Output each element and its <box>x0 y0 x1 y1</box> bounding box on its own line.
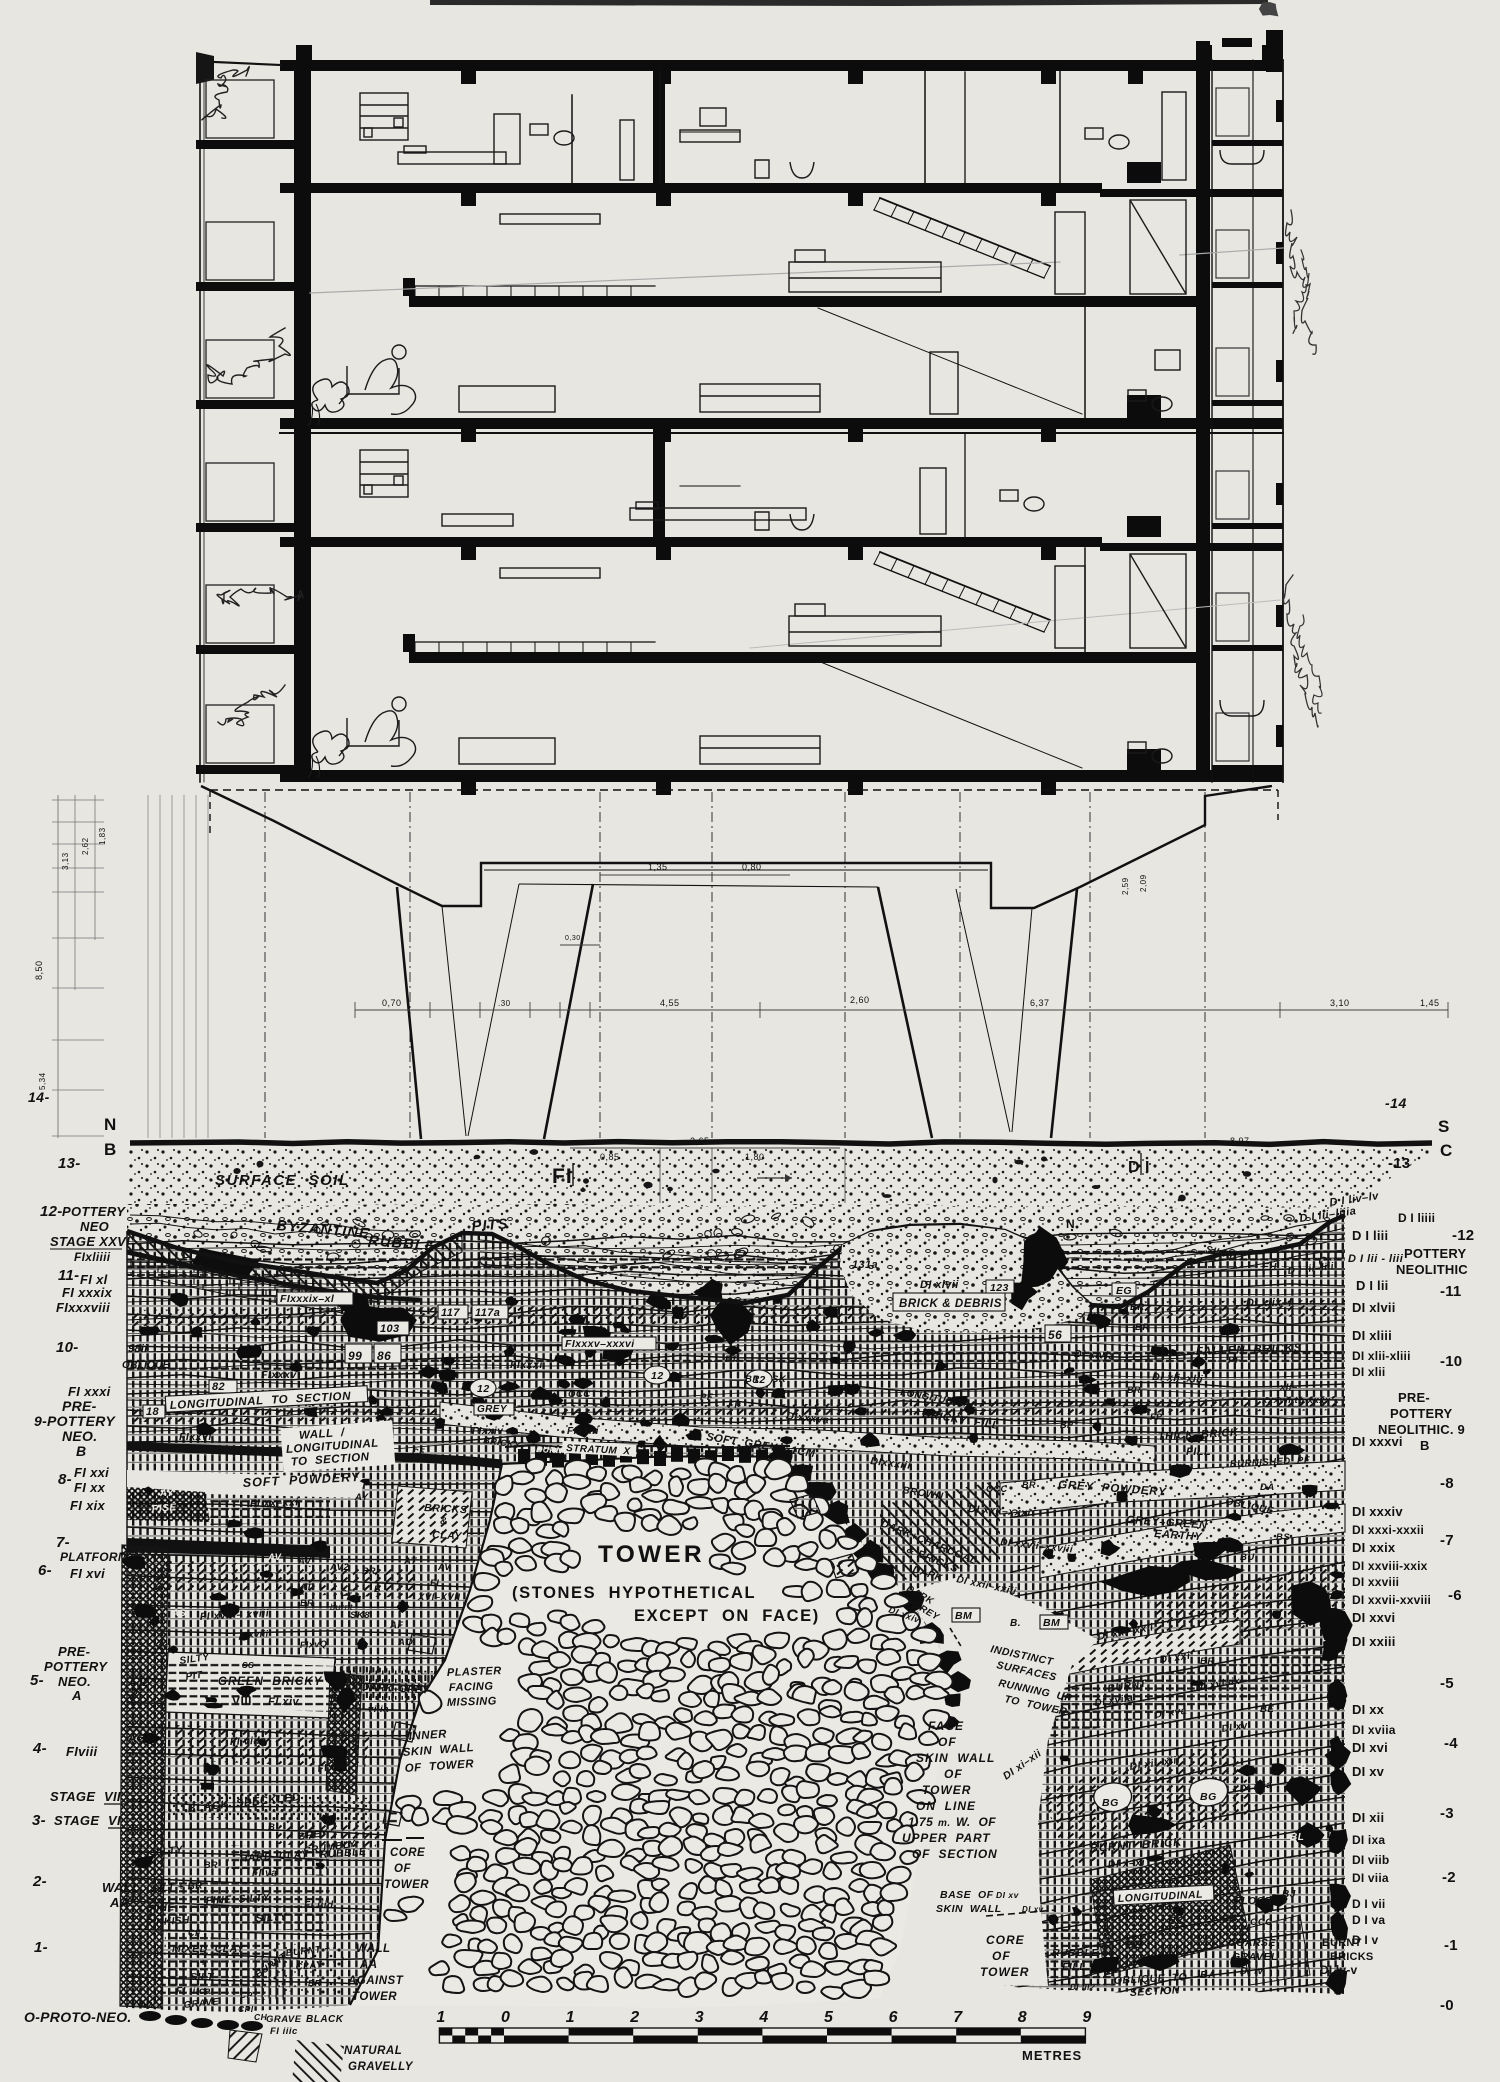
svg-text:BP: BP <box>1060 1420 1074 1430</box>
svg-text:WALL: WALL <box>356 1943 391 1955</box>
svg-text:BR: BR <box>308 1978 322 1988</box>
svg-text:B: B <box>104 1140 116 1159</box>
svg-text:AS: AS <box>171 1608 186 1619</box>
svg-text:BG: BG <box>1200 1791 1217 1803</box>
svg-text:DI xxvii-xxviii: DI xxvii-xxviii <box>1352 1593 1431 1607</box>
svg-text:TOWER: TOWER <box>384 1879 429 1891</box>
svg-text:viiia: viiia <box>368 1704 389 1715</box>
svg-text:DI xxxvi: DI xxxvi <box>1352 1434 1403 1449</box>
svg-text:FIxxxi: FIxxxi <box>510 1359 543 1371</box>
svg-text:CPI: CPI <box>238 2004 254 2014</box>
svg-text:AV: AV <box>139 2000 153 2010</box>
svg-text:RUBBLE–: RUBBLE– <box>1052 1947 1105 1959</box>
svg-text:2,59: 2,59 <box>1121 877 1130 895</box>
svg-text:AV: AV <box>437 1562 451 1572</box>
svg-text:FI iiid: FI iiid <box>304 1900 334 1911</box>
svg-text:FI xiv: FI xiv <box>268 1696 300 1708</box>
svg-text:D I vii: D I vii <box>1352 1897 1385 1911</box>
svg-text:FI iiica: FI iiica <box>176 1986 211 1997</box>
svg-text:DI xlix–l: DI xlix–l <box>1246 1297 1293 1309</box>
svg-text:11-: 11- <box>58 1267 79 1284</box>
svg-text:BJ: BJ <box>1282 1889 1296 1900</box>
svg-text:0,70: 0,70 <box>382 998 402 1008</box>
svg-text:DI xxxi-xxxii: DI xxxi-xxxii <box>1352 1523 1424 1537</box>
svg-text:1: 1 <box>436 2009 445 2026</box>
svg-text:AA: AA <box>109 1895 129 1910</box>
svg-text:117: 117 <box>441 1307 460 1319</box>
svg-text:BRICKS: BRICKS <box>424 1502 468 1516</box>
svg-text:7-: 7- <box>56 1534 70 1551</box>
svg-text:xxxvii to xxxx: xxxvii to xxxx <box>1261 1395 1331 1406</box>
svg-text:CLAY: CLAY <box>432 1529 463 1543</box>
svg-text:BURNT: BURNT <box>1322 1937 1362 1949</box>
svg-text:m.: m. <box>938 1818 951 1829</box>
svg-text:-7: -7 <box>1440 1532 1454 1549</box>
svg-text:PF: PF <box>700 1392 713 1403</box>
svg-text:-11: -11 <box>1440 1283 1461 1300</box>
svg-text:BE: BE <box>1260 1704 1274 1715</box>
svg-text:BC: BC <box>1168 1915 1185 1927</box>
svg-text:TOWER: TOWER <box>980 1965 1029 1979</box>
svg-text:DI xxviii: DI xxviii <box>1352 1575 1399 1589</box>
svg-text:TOWER: TOWER <box>352 1991 397 2003</box>
svg-text:VII: VII <box>104 1789 121 1804</box>
svg-text:2,62: 2,62 <box>81 837 90 855</box>
svg-text:BR: BR <box>1127 1385 1141 1395</box>
svg-text:AGAINST: AGAINST <box>347 1975 404 1987</box>
svg-text:FLOOR: FLOOR <box>1235 1896 1273 1907</box>
svg-text:GRAVE: GRAVE <box>266 2014 302 2025</box>
svg-text:DI xv: DI xv <box>1352 1764 1385 1779</box>
svg-text:0,80: 0,80 <box>742 862 762 872</box>
svg-text:BU: BU <box>1240 1552 1255 1563</box>
svg-text:FINE: FINE <box>149 1902 174 1915</box>
svg-text:B.: B. <box>1010 1618 1021 1629</box>
svg-text:TOWER: TOWER <box>598 1541 705 1568</box>
svg-text:SILTY: SILTY <box>255 1911 288 1925</box>
svg-text:AT: AT <box>403 1556 418 1567</box>
svg-text:OF: OF <box>394 1863 411 1875</box>
svg-text:STAGE XXVI: STAGE XXVI <box>50 1234 130 1249</box>
svg-text:10-: 10- <box>56 1339 79 1356</box>
svg-text:-14: -14 <box>1385 1095 1407 1111</box>
svg-text:PLATFORM: PLATFORM <box>60 1550 129 1564</box>
svg-text:DI xxvi: DI xxvi <box>1352 1610 1395 1625</box>
svg-text:GRAVELLY: GRAVELLY <box>348 2061 414 2073</box>
svg-text:98ii: 98ii <box>128 1343 148 1355</box>
svg-text:FIxxxv–xxxvi: FIxxxv–xxxvi <box>565 1338 635 1350</box>
svg-text:DI xxix: DI xxix <box>1352 1540 1396 1555</box>
svg-text:DI ixa: DI ixa <box>1352 1833 1385 1847</box>
svg-text:1-: 1- <box>34 1939 48 1956</box>
svg-text:FI xxi: FI xxi <box>74 1465 109 1480</box>
svg-text:FI: FI <box>552 1165 573 1188</box>
svg-text:FI xx: FI xx <box>74 1480 106 1495</box>
svg-text:FI iiic: FI iiic <box>270 2026 298 2037</box>
svg-text:S: S <box>1438 1117 1449 1136</box>
svg-text:FACE: FACE <box>928 1719 964 1733</box>
svg-text:SURFACE SOIL: SURFACE SOIL <box>215 1172 350 1189</box>
svg-text:CF: CF <box>330 1747 344 1758</box>
svg-text:VI: VI <box>108 1813 121 1828</box>
svg-text:SS: SS <box>1222 1914 1236 1925</box>
svg-text:DI xlvii: DI xlvii <box>920 1279 959 1291</box>
svg-text:+: + <box>200 1958 206 1969</box>
svg-text:9: 9 <box>1082 2009 1091 2026</box>
svg-text:1.75: 1.75 <box>908 1815 933 1829</box>
svg-text:BB: BB <box>1126 1939 1143 1951</box>
svg-text:NEO.: NEO. <box>58 1674 91 1689</box>
svg-text:FILL: FILL <box>1186 1446 1211 1458</box>
svg-text:BR: BR <box>1200 1656 1215 1667</box>
svg-text:AY: AY <box>159 1488 175 1499</box>
svg-text:GREY: GREY <box>477 1404 508 1415</box>
svg-text:4: 4 <box>758 2009 768 2026</box>
svg-text:PLASTER: PLASTER <box>447 1665 502 1679</box>
svg-text:123: 123 <box>990 1282 1009 1294</box>
svg-text:= xviii: = xviii <box>240 1629 269 1640</box>
svg-text:56: 56 <box>1048 1328 1062 1342</box>
svg-text:DI xx: DI xx <box>1352 1702 1385 1717</box>
svg-text:-2: -2 <box>1442 1869 1456 1886</box>
svg-text:OCC: OCC <box>568 1389 591 1400</box>
svg-text:FIxliiii: FIxliiii <box>74 1250 111 1264</box>
svg-text:DA: DA <box>1260 1482 1275 1493</box>
svg-text:SS: SS <box>242 1660 254 1670</box>
svg-text:POTTERY: POTTERY <box>62 1204 126 1219</box>
svg-text:SILT: SILT <box>190 1971 215 1983</box>
svg-text:8-: 8- <box>58 1471 72 1488</box>
svg-text:BR: BR <box>1130 1302 1145 1313</box>
svg-text:0,30: 0,30 <box>565 935 581 942</box>
svg-text:-13: -13 <box>1388 1155 1410 1172</box>
svg-text:NEO.: NEO. <box>62 1428 97 1444</box>
svg-text:CF: CF <box>340 1588 353 1598</box>
svg-text:SK8: SK8 <box>350 1610 370 1621</box>
svg-text:FI xxxi: FI xxxi <box>68 1384 111 1399</box>
svg-text:FIviii: FIviii <box>66 1744 98 1759</box>
svg-text:AT: AT <box>299 1582 313 1592</box>
svg-text:MISSING: MISSING <box>447 1695 497 1709</box>
svg-text:BRICK & DEBRIS: BRICK & DEBRIS <box>899 1298 1002 1310</box>
svg-text:AY: AY <box>354 1492 370 1503</box>
svg-text:BA: BA <box>1200 1969 1216 1981</box>
svg-text:OF SECTION: OF SECTION <box>912 1847 997 1861</box>
svg-text:DI xv: DI xv <box>996 1890 1020 1900</box>
svg-text:5-: 5- <box>30 1672 44 1689</box>
svg-text:DI lii?: DI lii? <box>1070 1983 1095 1992</box>
svg-text:FIxxxix–xl: FIxxxix–xl <box>280 1293 335 1305</box>
svg-text:BASE OF: BASE OF <box>940 1889 994 1901</box>
svg-text:EXCEPT ON FACE): EXCEPT ON FACE) <box>634 1607 820 1625</box>
svg-text:FILL: FILL <box>1062 1961 1086 1973</box>
svg-text:CORE: CORE <box>986 1933 1025 1947</box>
svg-text:8,50: 8,50 <box>34 960 44 980</box>
svg-text:13-: 13- <box>58 1155 81 1172</box>
svg-text:SKIN WALL: SKIN WALL <box>936 1903 1002 1915</box>
svg-text:BM: BM <box>955 1610 972 1622</box>
svg-text:18: 18 <box>146 1406 160 1418</box>
svg-text:OF: OF <box>992 1949 1011 1963</box>
svg-text:-5: -5 <box>1440 1675 1454 1692</box>
svg-text:A: A <box>71 1688 82 1703</box>
svg-text:POTTERY: POTTERY <box>1404 1246 1466 1261</box>
svg-text:BL: BL <box>1290 1832 1304 1843</box>
svg-text:POTTERY: POTTERY <box>44 1659 108 1674</box>
svg-text:DI xxiii: DI xxiii <box>1352 1634 1396 1649</box>
svg-text:FIxxxv: FIxxxv <box>261 1369 297 1381</box>
svg-text:UPPER PART: UPPER PART <box>902 1831 991 1845</box>
svg-text:DI viib: DI viib <box>1352 1853 1389 1867</box>
svg-text:117a: 117a <box>475 1307 500 1319</box>
svg-text:SKIN WALL: SKIN WALL <box>916 1751 995 1765</box>
svg-text:&: & <box>440 1516 448 1527</box>
svg-text:DI xviia: DI xviia <box>1352 1723 1396 1737</box>
svg-text:NEOLITHIC: NEOLITHIC <box>1396 1262 1468 1277</box>
svg-text:GRAVEL: GRAVEL <box>1232 1951 1278 1963</box>
svg-text:-1: -1 <box>1444 1937 1458 1954</box>
svg-text:DI lv: DI lv <box>1240 1966 1265 1977</box>
svg-text:FP: FP <box>1150 1412 1163 1422</box>
svg-text:DI xxxiv: DI xxxiv <box>1352 1504 1403 1519</box>
svg-text:-12: -12 <box>1452 1227 1474 1244</box>
svg-text:BG: BG <box>1102 1797 1119 1809</box>
svg-text:3,13: 3,13 <box>61 852 70 870</box>
svg-text:AV: AV <box>267 1552 282 1563</box>
svg-text:SK: SK <box>772 1374 787 1385</box>
svg-text:DI xv: DI xv <box>1022 1905 1044 1914</box>
svg-text:12: 12 <box>651 1370 664 1382</box>
svg-text:STAGE: STAGE <box>50 1789 95 1804</box>
svg-text:6-: 6- <box>38 1562 52 1579</box>
svg-text:DI xlii: DI xlii <box>1352 1365 1385 1379</box>
svg-text:-10: -10 <box>1440 1353 1462 1370</box>
svg-text:3,10: 3,10 <box>1330 998 1350 1008</box>
svg-text:DI xvi: DI xvi <box>1352 1740 1388 1755</box>
svg-text:8: 8 <box>1018 2009 1027 2026</box>
svg-text:12-: 12- <box>40 1203 63 1220</box>
svg-text:FI viiia: FI viiia <box>230 1735 267 1748</box>
svg-text:CF: CF <box>412 1447 425 1457</box>
svg-text:CF: CF <box>188 1928 201 1938</box>
svg-text:POTTERY: POTTERY <box>1390 1406 1452 1421</box>
svg-text:FI xx–xxi: FI xx–xxi <box>250 1496 300 1510</box>
svg-text:FIxxxviii: FIxxxviii <box>56 1300 110 1315</box>
svg-text:6: 6 <box>889 2009 898 2026</box>
svg-text:1,45: 1,45 <box>1420 998 1440 1008</box>
svg-text:FI va: FI va <box>252 1868 277 1879</box>
svg-text:D I va: D I va <box>1352 1913 1385 1927</box>
svg-text:NEO: NEO <box>80 1219 109 1234</box>
svg-text:ON LINE: ON LINE <box>916 1799 976 1813</box>
svg-text:W. OF: W. OF <box>956 1815 996 1829</box>
svg-text:COARSE: COARSE <box>1228 1937 1276 1949</box>
svg-text:2-: 2- <box>32 1873 47 1890</box>
svg-text:AO: AO <box>397 1637 413 1648</box>
svg-text:AA: AA <box>359 1959 378 1971</box>
svg-text:BS: BS <box>1276 1532 1290 1543</box>
svg-text:OBLIQUE: OBLIQUE <box>122 1360 170 1371</box>
svg-text:FIxxvi: FIxxvi <box>179 1431 212 1443</box>
svg-text:6,37: 6,37 <box>1030 998 1050 1008</box>
svg-text:3: 3 <box>695 2009 704 2026</box>
svg-text:D: D <box>1128 1159 1140 1176</box>
svg-text:DI xliii: DI xliii <box>1352 1328 1392 1343</box>
svg-text:FACING: FACING <box>449 1680 494 1694</box>
svg-text:EG: EG <box>1116 1285 1132 1297</box>
svg-text:7: 7 <box>953 2009 963 2026</box>
svg-text:DI xlii-xliii: DI xlii-xliii <box>1352 1349 1411 1363</box>
svg-text:5,34: 5,34 <box>38 1072 47 1090</box>
svg-text:VIII: VIII <box>232 1694 252 1708</box>
svg-text:DI lv-v: DI lv-v <box>1320 1963 1358 1977</box>
svg-text:MIXED CLAY: MIXED CLAY <box>172 1943 245 1955</box>
svg-text:FT: FT <box>725 1354 738 1365</box>
svg-text:-0: -0 <box>1440 1997 1454 2014</box>
svg-text:-4: -4 <box>1444 1735 1458 1752</box>
svg-text:1: 1 <box>566 2009 575 2026</box>
svg-text:3-: 3- <box>32 1812 46 1829</box>
svg-text:I: I <box>1145 1159 1149 1176</box>
svg-text:DI xii: DI xii <box>1352 1810 1384 1825</box>
svg-text:STAGE: STAGE <box>54 1813 99 1828</box>
svg-text:2: 2 <box>629 2009 639 2026</box>
svg-text:4,55: 4,55 <box>660 998 680 1008</box>
svg-text:103: 103 <box>380 1323 400 1335</box>
svg-text:BE2: BE2 <box>1296 1762 1316 1773</box>
svg-text:0: 0 <box>501 2009 510 2026</box>
svg-text:xli–: xli– <box>1279 1382 1298 1393</box>
svg-text:1,83: 1,83 <box>98 827 107 845</box>
svg-text:AV2: AV2 <box>329 1562 349 1573</box>
svg-text:O-PROTO-NEO.: O-PROTO-NEO. <box>24 2009 132 2025</box>
svg-text:12: 12 <box>477 1383 490 1395</box>
svg-text:PITS: PITS <box>471 1216 509 1235</box>
svg-text:B: B <box>268 1822 275 1833</box>
svg-text:FI: FI <box>430 1578 439 1589</box>
svg-text:2,60: 2,60 <box>850 995 870 1005</box>
svg-text:CP: CP <box>240 1990 253 2000</box>
svg-text:BR: BR <box>745 1374 760 1385</box>
svg-text:DI viia: DI viia <box>1352 1871 1389 1885</box>
svg-text:BR: BR <box>1022 1480 1036 1490</box>
svg-text:OCC: OCC <box>986 1484 1008 1494</box>
svg-text:PRE-: PRE- <box>58 1644 90 1659</box>
svg-text:C: C <box>1440 1141 1452 1160</box>
svg-text:2,09: 2,09 <box>1139 874 1148 892</box>
svg-text:FIxvQ: FIxvQ <box>300 1639 328 1650</box>
svg-text:-6: -6 <box>1448 1587 1462 1604</box>
svg-text:OF: OF <box>944 1767 963 1781</box>
svg-text:CORE: CORE <box>390 1847 425 1859</box>
svg-text:NATURAL: NATURAL <box>344 2045 402 2057</box>
svg-text:DI xlvia: DI xlvia <box>1074 1348 1115 1362</box>
svg-text:-3: -3 <box>1440 1805 1454 1822</box>
svg-text:(STONES HYPOTHETICAL: (STONES HYPOTHETICAL <box>512 1584 756 1602</box>
svg-text:AG: AG <box>127 1733 145 1745</box>
svg-text:XVI–XVII: XVI–XVII <box>417 1592 461 1603</box>
svg-text:N: N <box>1066 1217 1075 1231</box>
svg-text:B: B <box>374 1584 381 1594</box>
svg-text:1,35: 1,35 <box>648 862 668 872</box>
svg-text:DI xlvii: DI xlvii <box>1352 1300 1396 1315</box>
svg-text:5: 5 <box>824 2009 834 2026</box>
svg-text:EH: EH <box>1262 1262 1277 1273</box>
svg-text:D I liii: D I liii <box>1352 1228 1388 1243</box>
svg-text:B: B <box>1420 1438 1430 1453</box>
svg-text:BR: BR <box>204 1860 218 1870</box>
svg-text:METRES: METRES <box>1022 2048 1082 2063</box>
svg-text:BRICKS: BRICKS <box>1330 1951 1373 1963</box>
svg-text:BR: BR <box>300 1598 314 1608</box>
svg-text:BR: BR <box>362 1566 376 1576</box>
svg-text:FP: FP <box>728 1400 741 1411</box>
svg-text:AF: AF <box>389 1620 404 1631</box>
svg-text:AJ2: AJ2 <box>127 1677 149 1689</box>
svg-text:AV: AV <box>297 1556 312 1567</box>
svg-text:B: B <box>76 1443 86 1459</box>
svg-text:9-POTTERY: 9-POTTERY <box>34 1413 116 1429</box>
svg-text:99: 99 <box>348 1349 362 1363</box>
svg-text:DI xxviii-xxix: DI xxviii-xxix <box>1352 1559 1428 1573</box>
svg-text:FI xvi: FI xvi <box>70 1566 105 1581</box>
svg-text:OF: OF <box>938 1735 957 1749</box>
svg-text:-8: -8 <box>1440 1475 1454 1492</box>
svg-text:BR: BR <box>1135 1322 1150 1333</box>
svg-text:FI xxxix: FI xxxix <box>62 1285 113 1300</box>
svg-text:FI xix: FI xix <box>70 1498 106 1513</box>
svg-text:AO: AO <box>155 1642 171 1653</box>
svg-text:BLACK: BLACK <box>306 2014 344 2025</box>
svg-text:GREEN BRICKY: GREEN BRICKY <box>218 1676 323 1688</box>
svg-text:TOWER: TOWER <box>922 1783 971 1797</box>
svg-text:131a: 131a <box>852 1259 878 1271</box>
svg-text:WALL: WALL <box>102 1880 140 1895</box>
svg-text:D I lii: D I lii <box>1356 1278 1388 1293</box>
svg-text:14-: 14- <box>28 1089 50 1105</box>
svg-text:86: 86 <box>377 1349 391 1363</box>
svg-text:BM: BM <box>1043 1617 1060 1629</box>
svg-text:OCC: OCC <box>1250 1917 1273 1928</box>
svg-text:82: 82 <box>212 1381 225 1393</box>
svg-text:FIxxiii: FIxxiii <box>567 1426 599 1437</box>
svg-text:N: N <box>104 1115 116 1134</box>
svg-text:.30: .30 <box>498 999 511 1008</box>
svg-text:PRE-: PRE- <box>1398 1390 1430 1405</box>
svg-text:D I liiii: D I liiii <box>1398 1211 1435 1225</box>
svg-text:PRE-: PRE- <box>62 1398 97 1414</box>
svg-text:D I lii - liii: D I lii - liii <box>1348 1253 1404 1265</box>
svg-text:4-: 4- <box>32 1740 47 1757</box>
